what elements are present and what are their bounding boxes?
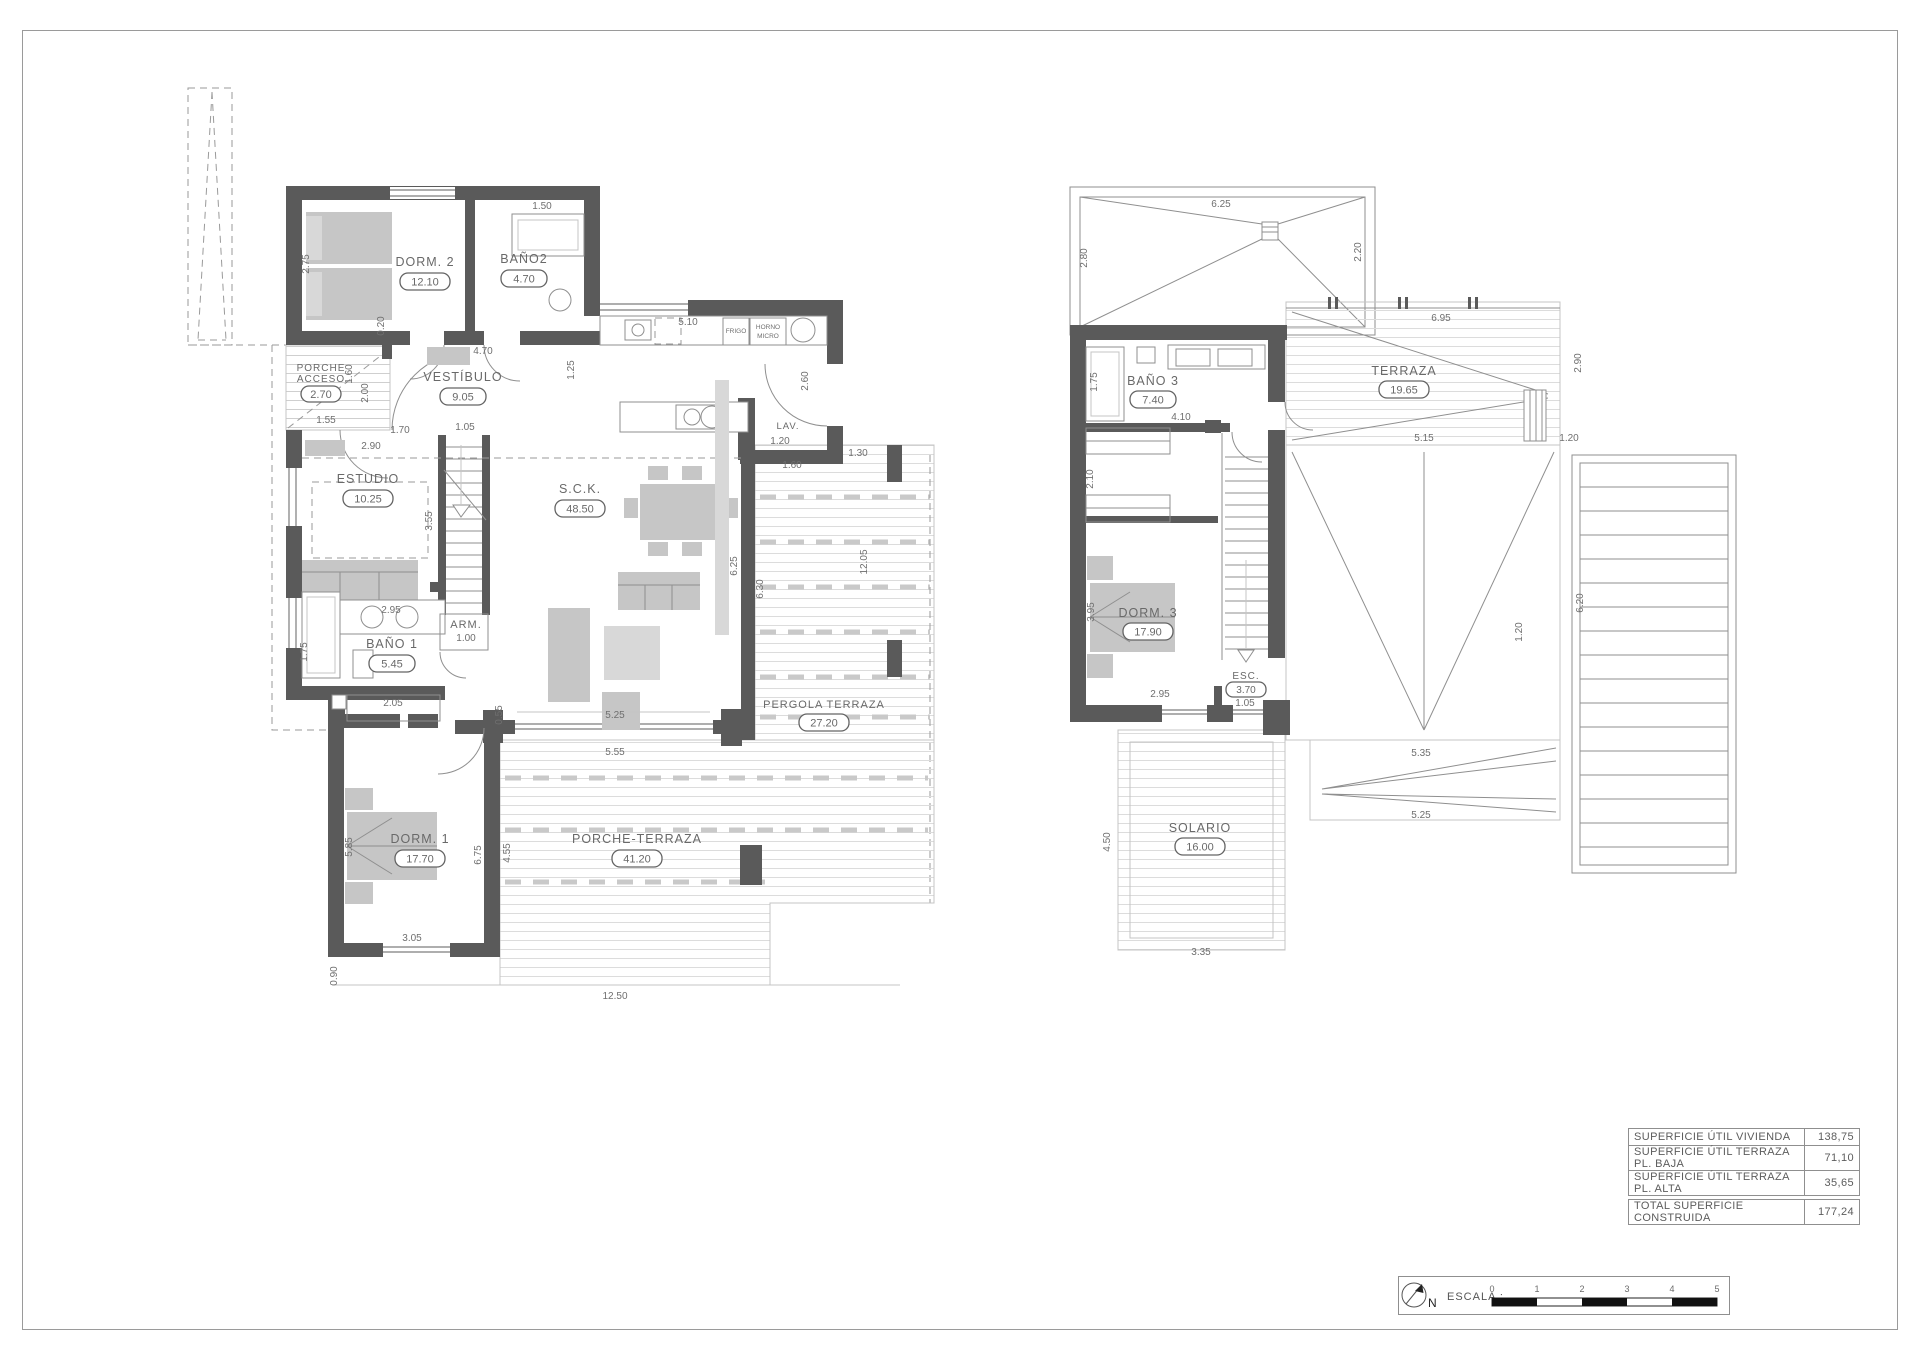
room-label-arm: ARM. — [450, 619, 482, 631]
dim-label: 1.60 — [782, 460, 802, 471]
pergola-post — [887, 640, 902, 677]
appliance-label-micro: MICRO — [757, 333, 779, 340]
dim-label: 1.05 — [455, 422, 475, 433]
dim-label: 3.05 — [402, 933, 422, 944]
dim-label: 1.20 — [1514, 622, 1525, 642]
room-area: 41.20 — [623, 854, 651, 866]
dim-label: 1.30 — [848, 448, 868, 459]
room-label: BAÑO2 — [500, 252, 547, 266]
dim-label: 1.00 — [456, 633, 476, 644]
dim-label: 5.25 — [605, 710, 625, 721]
upper-stairs — [1225, 457, 1268, 662]
dim-label: 1.05 — [1235, 698, 1255, 709]
dim-label: 6.30 — [755, 579, 766, 599]
dim-label: 2.90 — [1573, 353, 1584, 373]
dim-label: 2.60 — [800, 371, 811, 391]
area-summary-table: SUPERFICIE ÚTIL VIVIENDA 138,75 SUPERFIC… — [1628, 1128, 1860, 1196]
north-label: N — [1428, 1296, 1437, 1310]
dim-label: 1.20 — [770, 436, 790, 447]
scale-segments — [1492, 1298, 1717, 1306]
room-label-sck: S.C.K. 48.50 — [555, 482, 605, 517]
tick-label: 2 — [1579, 1284, 1584, 1294]
room-area: 9.05 — [452, 392, 473, 404]
room-label-lav: LAV. — [776, 421, 799, 432]
dim-label: 6.95 — [1431, 313, 1451, 324]
dim-label: 5.85 — [344, 837, 355, 857]
dim-label: 2.75 — [301, 254, 312, 274]
dim-label: 2.95 — [381, 605, 401, 616]
room-area: 17.90 — [1134, 627, 1162, 639]
row-label: TOTAL SUPERFICIE CONSTRUIDA — [1629, 1200, 1805, 1225]
room-label-porche-acceso: PORCHE ACCESO 2.70 — [297, 363, 346, 402]
table-row: SUPERFICIE ÚTIL TERRAZA PL. BAJA 71,10 — [1629, 1146, 1860, 1171]
dim-label: 12.05 — [859, 549, 870, 574]
room-label: PORCHE — [297, 363, 346, 374]
table-row: TOTAL SUPERFICIE CONSTRUIDA 177,24 — [1629, 1200, 1860, 1225]
room-label: SOLARIO — [1169, 821, 1232, 835]
dim-label: 1.60 — [344, 364, 355, 384]
dim-label: 1.70 — [390, 425, 410, 436]
room-area: 17.70 — [406, 854, 434, 866]
dim-label: 2.90 — [361, 441, 381, 452]
room-area: 10.25 — [354, 494, 382, 506]
dim-label: 6.25 — [729, 556, 740, 576]
tick-label: 3 — [1624, 1284, 1629, 1294]
room-label: PORCHE-TERRAZA — [572, 832, 702, 846]
room-area: 7.40 — [1142, 395, 1163, 407]
dim-label: 1.20 — [1559, 433, 1579, 444]
dim-label: 6.20 — [1575, 593, 1586, 613]
dim-label: 5.35 — [1411, 748, 1431, 759]
dim-label: 12.50 — [602, 991, 627, 1002]
upper-floor-plan: BAÑO 3 7.40 TERRAZA 19.65 DORM. 3 17.90 … — [1070, 187, 1736, 958]
row-value: 138,75 — [1805, 1129, 1860, 1146]
dim-label: 4.70 — [473, 346, 493, 357]
room-label-bano3: BAÑO 3 7.40 — [1127, 374, 1179, 408]
room-label: BAÑO 1 — [366, 637, 418, 651]
room-area: 2.70 — [310, 389, 331, 401]
floor-plan-sheet: { "ground_floor": { "rooms": [ {"label":… — [0, 0, 1920, 1360]
scale-bar-graphic: N ESCALA : 0 1 2 3 4 5 — [1398, 1276, 1730, 1316]
tick-label: 1 — [1534, 1284, 1539, 1294]
row-value: 71,10 — [1805, 1146, 1860, 1171]
room-label: PERGOLA TERRAZA — [763, 699, 885, 711]
tick-label: 4 — [1669, 1284, 1674, 1294]
ground-stairs — [444, 445, 486, 603]
dim-label: 1.50 — [532, 201, 552, 212]
room-label-vestibulo: VESTÍBULO 9.05 — [423, 369, 502, 405]
pergola-post — [887, 445, 902, 482]
room-label: TERRAZA — [1371, 364, 1436, 378]
room-area: 3.70 — [1236, 685, 1256, 696]
row-label: SUPERFICIE ÚTIL VIVIENDA — [1629, 1129, 1805, 1146]
appliance-label-frigo: FRIGO — [726, 328, 747, 335]
dim-label: 2.20 — [1353, 242, 1364, 262]
room-area: 27.20 — [810, 718, 838, 730]
table-row: SUPERFICIE ÚTIL TERRAZA PL. ALTA 35,65 — [1629, 1171, 1860, 1196]
scale-bar: N ESCALA : 0 1 2 3 4 5 — [1398, 1276, 1730, 1321]
dim-label: 4.55 — [502, 843, 513, 863]
room-label: S.C.K. — [559, 482, 601, 496]
dim-label: 5.55 — [605, 747, 625, 758]
room-label-dorm2: DORM. 2 12.10 — [395, 255, 454, 290]
appliance-label-horno: HORNO — [756, 324, 780, 331]
dim-label: 4.50 — [1102, 832, 1113, 852]
roof-wedges — [1310, 740, 1560, 820]
dim-label: 1.75 — [299, 642, 310, 662]
north-compass-icon: N — [1402, 1283, 1437, 1310]
dim-label: 5.25 — [1411, 810, 1431, 821]
dim-label: 2.80 — [1079, 248, 1090, 268]
dim-label: 2.05 — [383, 698, 403, 709]
table-row: SUPERFICIE ÚTIL VIVIENDA 138,75 — [1629, 1129, 1860, 1146]
room-area: 12.10 — [411, 277, 439, 289]
dim-label: 3.55 — [424, 511, 435, 531]
room-area: 19.65 — [1390, 385, 1418, 397]
dim-label: 4.10 — [1171, 412, 1191, 423]
room-label: ACCESO — [297, 374, 345, 385]
room-label: DORM. 1 — [390, 832, 449, 846]
tick-label: 5 — [1714, 1284, 1719, 1294]
dim-label: 1.55 — [316, 415, 336, 426]
room-label-bano1: BAÑO 1 5.45 — [366, 637, 418, 672]
room-label: VESTÍBULO — [423, 369, 502, 384]
row-value: 35,65 — [1805, 1171, 1860, 1196]
room-label: ESTUDIO — [337, 472, 400, 486]
dim-label: 5.10 — [678, 317, 698, 328]
slatted-pergola — [1572, 455, 1736, 873]
dim-label: 0.90 — [329, 966, 340, 986]
room-label: BAÑO 3 — [1127, 374, 1179, 388]
room-label: DORM. 3 — [1118, 606, 1177, 620]
dim-label: 2.10 — [1085, 469, 1096, 489]
room-label-estudio: ESTUDIO 10.25 — [337, 472, 400, 507]
row-label: SUPERFICIE ÚTIL TERRAZA PL. ALTA — [1629, 1171, 1805, 1196]
dim-label: 1.25 — [566, 360, 577, 380]
dim-label: 6.25 — [1211, 199, 1231, 210]
dim-label: 0.20 — [376, 316, 387, 336]
dim-label: 0.55 — [494, 705, 505, 725]
room-area: 48.50 — [566, 504, 594, 516]
room-label-esc: ESC. 3.70 — [1226, 671, 1266, 697]
room-area: 16.00 — [1186, 842, 1214, 854]
dim-label: 3.95 — [1086, 602, 1097, 622]
dim-label: 5.15 — [1414, 433, 1434, 444]
room-label-bano2: BAÑO2 4.70 — [500, 252, 547, 287]
room-area: 5.45 — [381, 659, 402, 671]
row-label: SUPERFICIE ÚTIL TERRAZA PL. BAJA — [1629, 1146, 1805, 1171]
porche-terraza-deck — [500, 740, 934, 985]
dim-label: 1.75 — [1089, 372, 1100, 392]
room-label: ESC. — [1232, 671, 1259, 682]
row-value: 177,24 — [1805, 1200, 1860, 1225]
room-area: 4.70 — [513, 274, 534, 286]
dim-label: 3.35 — [1191, 947, 1211, 958]
ground-floor-plan: DORM. 2 12.10 BAÑO2 4.70 VESTÍBULO 9.05 … — [188, 88, 934, 1002]
room-label: DORM. 2 — [395, 255, 454, 269]
dim-label: 2.00 — [360, 383, 371, 403]
tick-label: 0 — [1489, 1284, 1494, 1294]
scale-ticks: 0 1 2 3 4 5 — [1489, 1284, 1719, 1294]
dim-label: 2.95 — [1150, 689, 1170, 700]
total-area-row: TOTAL SUPERFICIE CONSTRUIDA 177,24 — [1628, 1199, 1860, 1225]
main-roof-region — [1286, 445, 1560, 740]
dim-label: 6.75 — [473, 845, 484, 865]
